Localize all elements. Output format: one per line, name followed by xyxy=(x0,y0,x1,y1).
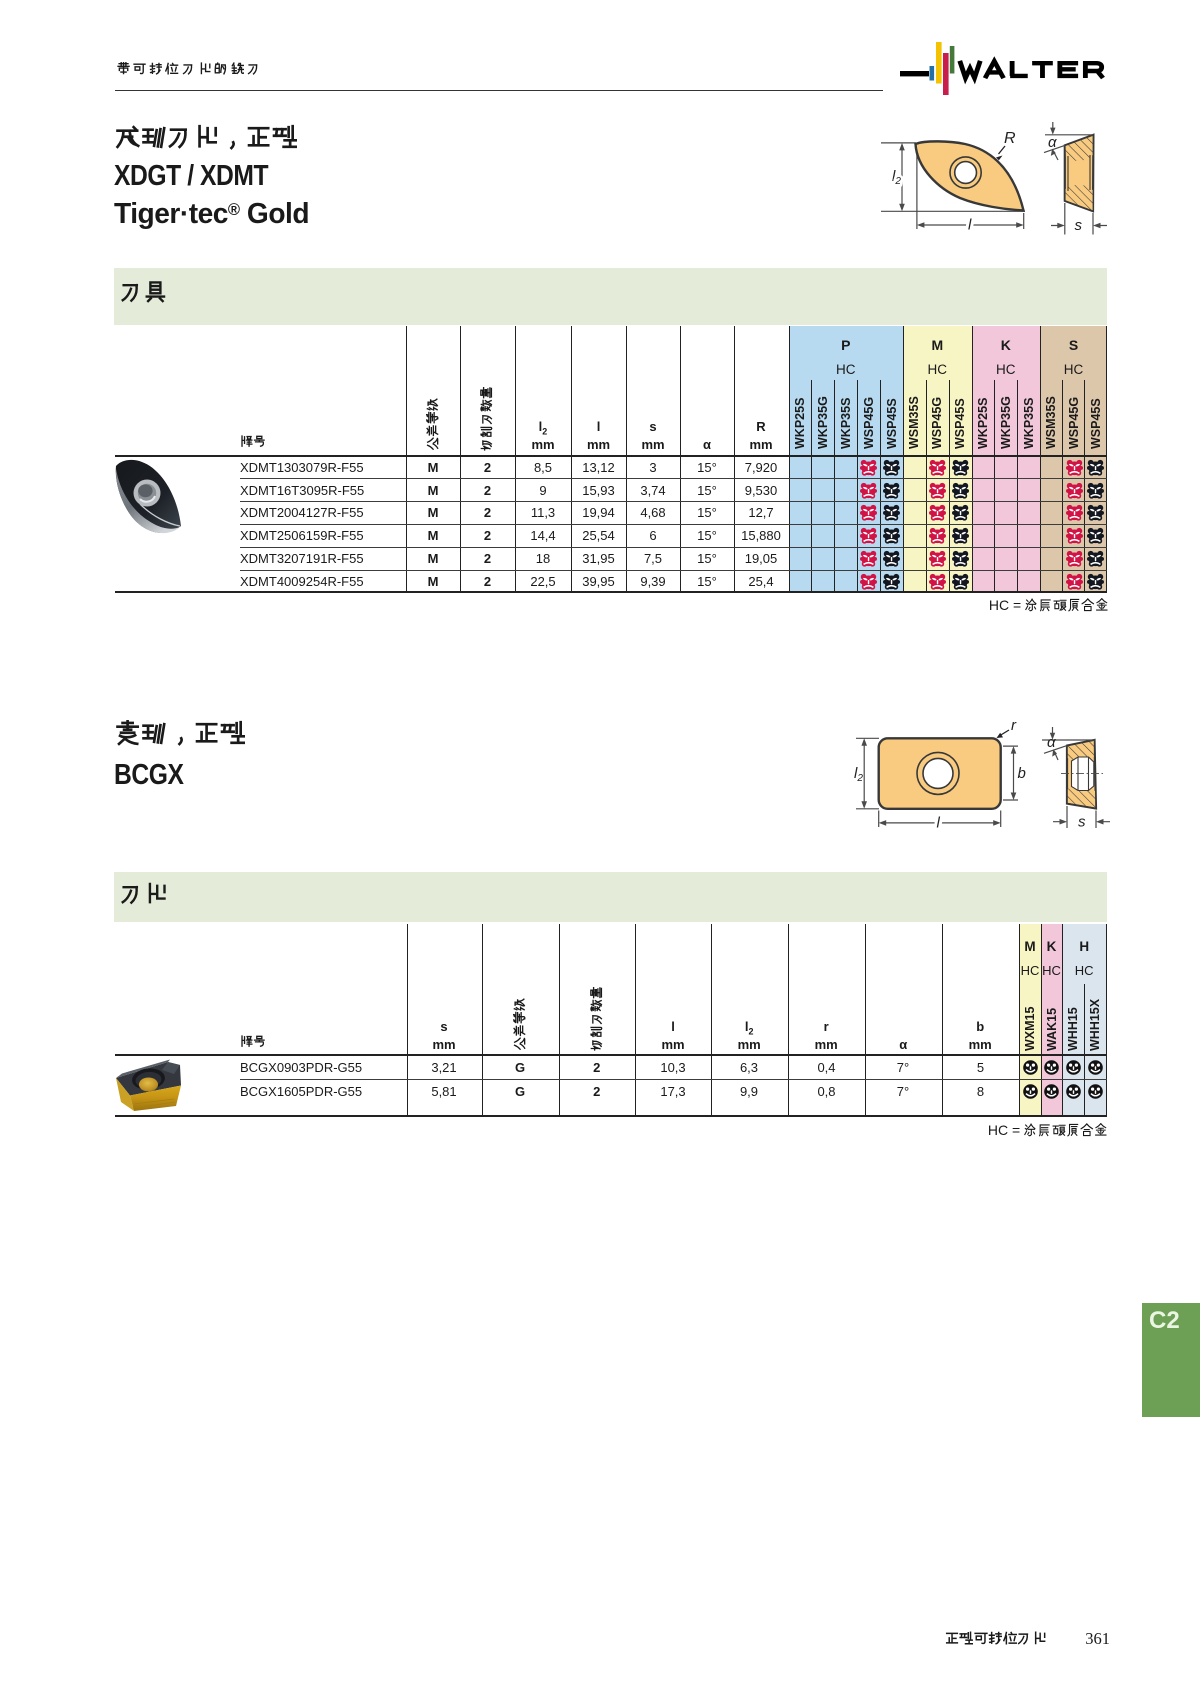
svg-text:b: b xyxy=(1018,765,1026,782)
svg-text:l2: l2 xyxy=(854,765,863,784)
svg-text:l2: l2 xyxy=(892,168,901,187)
svg-text:r: r xyxy=(1011,717,1017,734)
svg-text:α: α xyxy=(1047,734,1056,751)
svg-text:s: s xyxy=(1075,217,1083,234)
svg-text:s: s xyxy=(1078,814,1086,831)
svg-text:α: α xyxy=(1048,134,1057,151)
svg-text:R: R xyxy=(1004,130,1016,147)
